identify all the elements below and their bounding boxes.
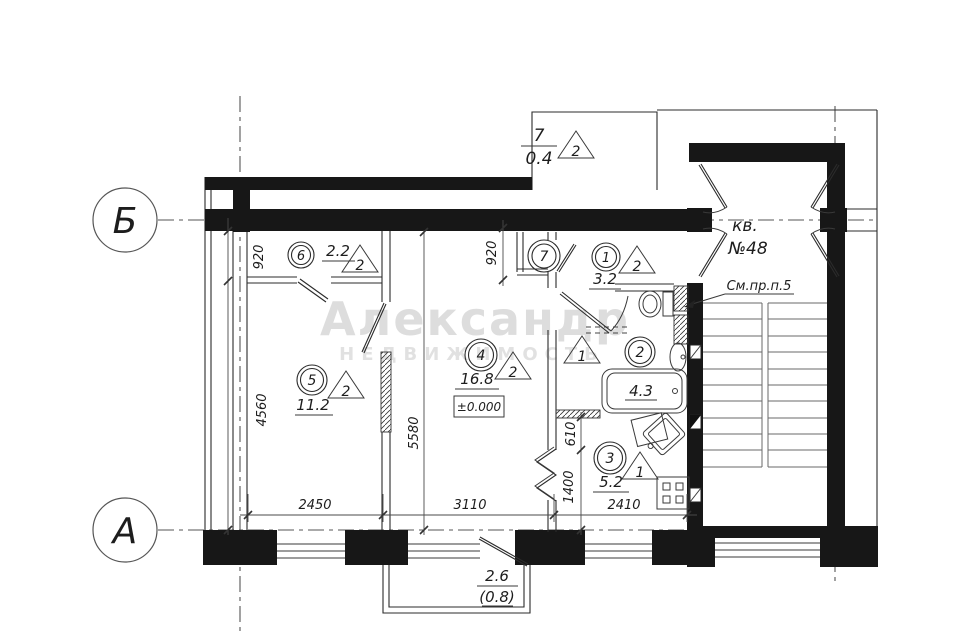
dim-4560: 4560 [255,393,270,426]
room-2-number: 2 [636,345,645,361]
apartment-number: №48 [727,239,767,259]
vent-shaft [674,286,688,311]
room-2-area: 4.3 [629,382,653,400]
room-1-area: 3.2 [593,270,617,288]
level-mark: ±0.000 [457,400,502,414]
balcony-top-marker: 2 [572,144,581,160]
balcony-bottom-area: 2.6 [485,567,509,585]
room-4-area: 16.8 [460,370,493,388]
room-7-number: 7 [540,249,549,265]
apartment-note: См.пр.п.5 [727,279,792,294]
room-1-number: 1 [602,251,610,266]
dim-920-left: 920 [252,245,267,270]
room-5-number: 5 [308,373,317,389]
room-4-marker: 2 [509,365,518,381]
room-1-marker: 2 [633,259,642,275]
dim-610: 610 [564,422,579,447]
room-6-marker: 2 [356,258,365,274]
dim-2410: 2410 [607,498,640,513]
balcony-top-number: 7 [534,126,545,146]
balcony-bottom-area-alt: (0.8) [479,588,515,606]
floor-plan-drawing: Александр НЕДВИЖИМОСТЬ [0,0,960,640]
axis-a-label: А [111,511,138,552]
dim-920-right: 920 [485,241,500,266]
axis-b-label: Б [113,201,138,242]
dim-5580: 5580 [407,416,422,449]
room-3-marker: 1 [636,465,645,481]
dim-2450: 2450 [298,498,331,513]
floor-plan-svg: Александр НЕДВИЖИМОСТЬ [0,0,960,640]
room-2-marker: 1 [578,349,587,365]
room-5-marker: 2 [342,384,351,400]
dim-3110: 3110 [453,498,486,513]
room-3-area: 5.2 [599,473,623,491]
dim-1400: 1400 [562,470,577,503]
room-3-number: 3 [606,451,615,467]
apartment-kv: кв. [732,216,758,236]
room-4-number: 4 [477,348,486,364]
balcony-top-area: 0.4 [525,149,552,169]
room-6-number: 6 [297,249,305,264]
room-5-area: 11.2 [296,396,329,414]
room-6-area: 2.2 [326,242,350,260]
